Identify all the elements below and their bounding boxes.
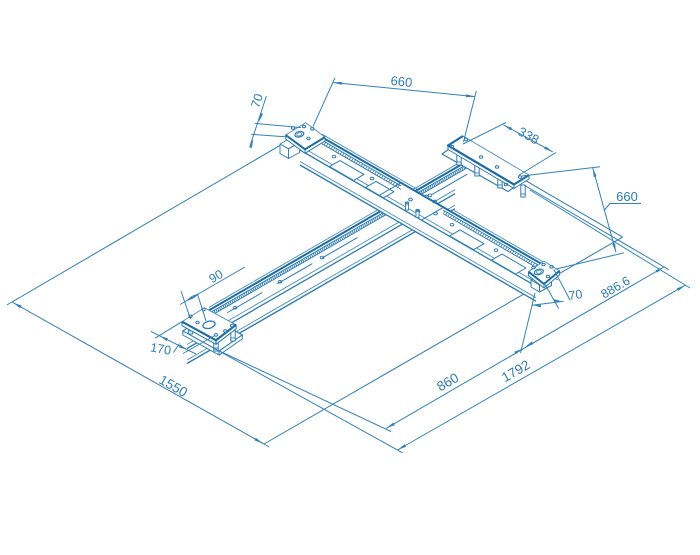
svg-text:70: 70 [568,287,584,303]
svg-text:660: 660 [616,189,638,204]
svg-text:660: 660 [390,73,413,90]
